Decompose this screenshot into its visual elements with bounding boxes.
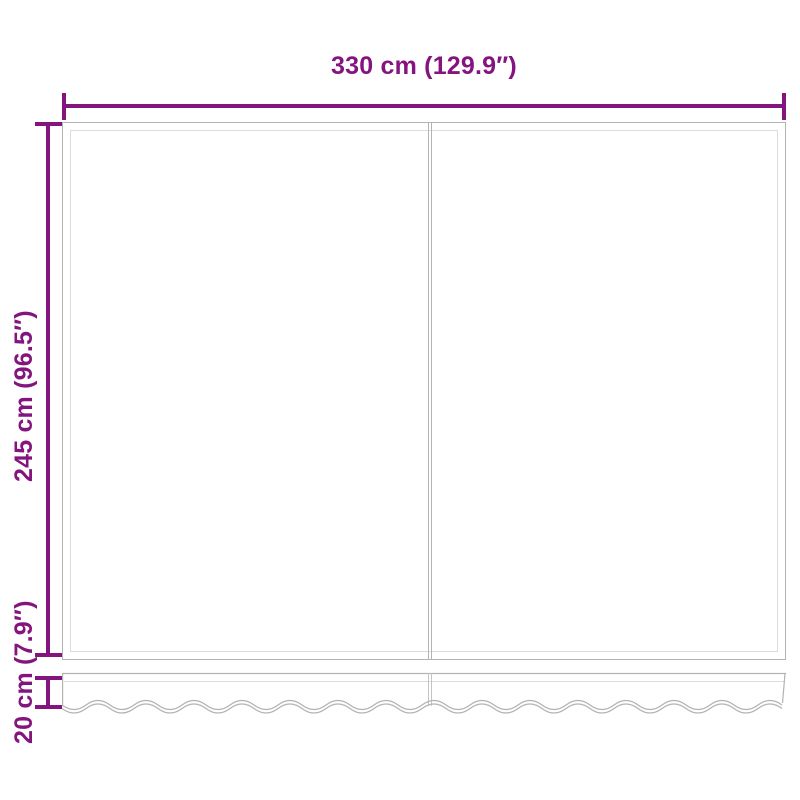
valance-dimension-line bbox=[46, 676, 50, 709]
dimension-tick bbox=[35, 122, 62, 126]
dimension-tick bbox=[35, 676, 62, 680]
awning-fabric-inner-border bbox=[70, 130, 778, 652]
height-dimension-label: 245 cm (96.5″) bbox=[10, 310, 39, 482]
dimension-tick bbox=[62, 93, 66, 120]
valance-right-edge bbox=[783, 674, 786, 704]
valance-flounce bbox=[62, 672, 786, 720]
height-dimension-line bbox=[46, 122, 50, 657]
dimension-tick bbox=[35, 653, 62, 657]
width-dimension-label: 330 cm (129.9″) bbox=[62, 52, 786, 81]
product-dimension-diagram: 330 cm (129.9″) 245 cm (96.5″) 20 cm (7.… bbox=[0, 0, 800, 800]
valance-dimension-label: 20 cm (7.9″) bbox=[10, 600, 39, 744]
dimension-tick bbox=[35, 705, 62, 709]
fabric-center-seam bbox=[428, 122, 432, 660]
dimension-tick bbox=[782, 93, 786, 120]
width-dimension-line bbox=[62, 104, 786, 108]
